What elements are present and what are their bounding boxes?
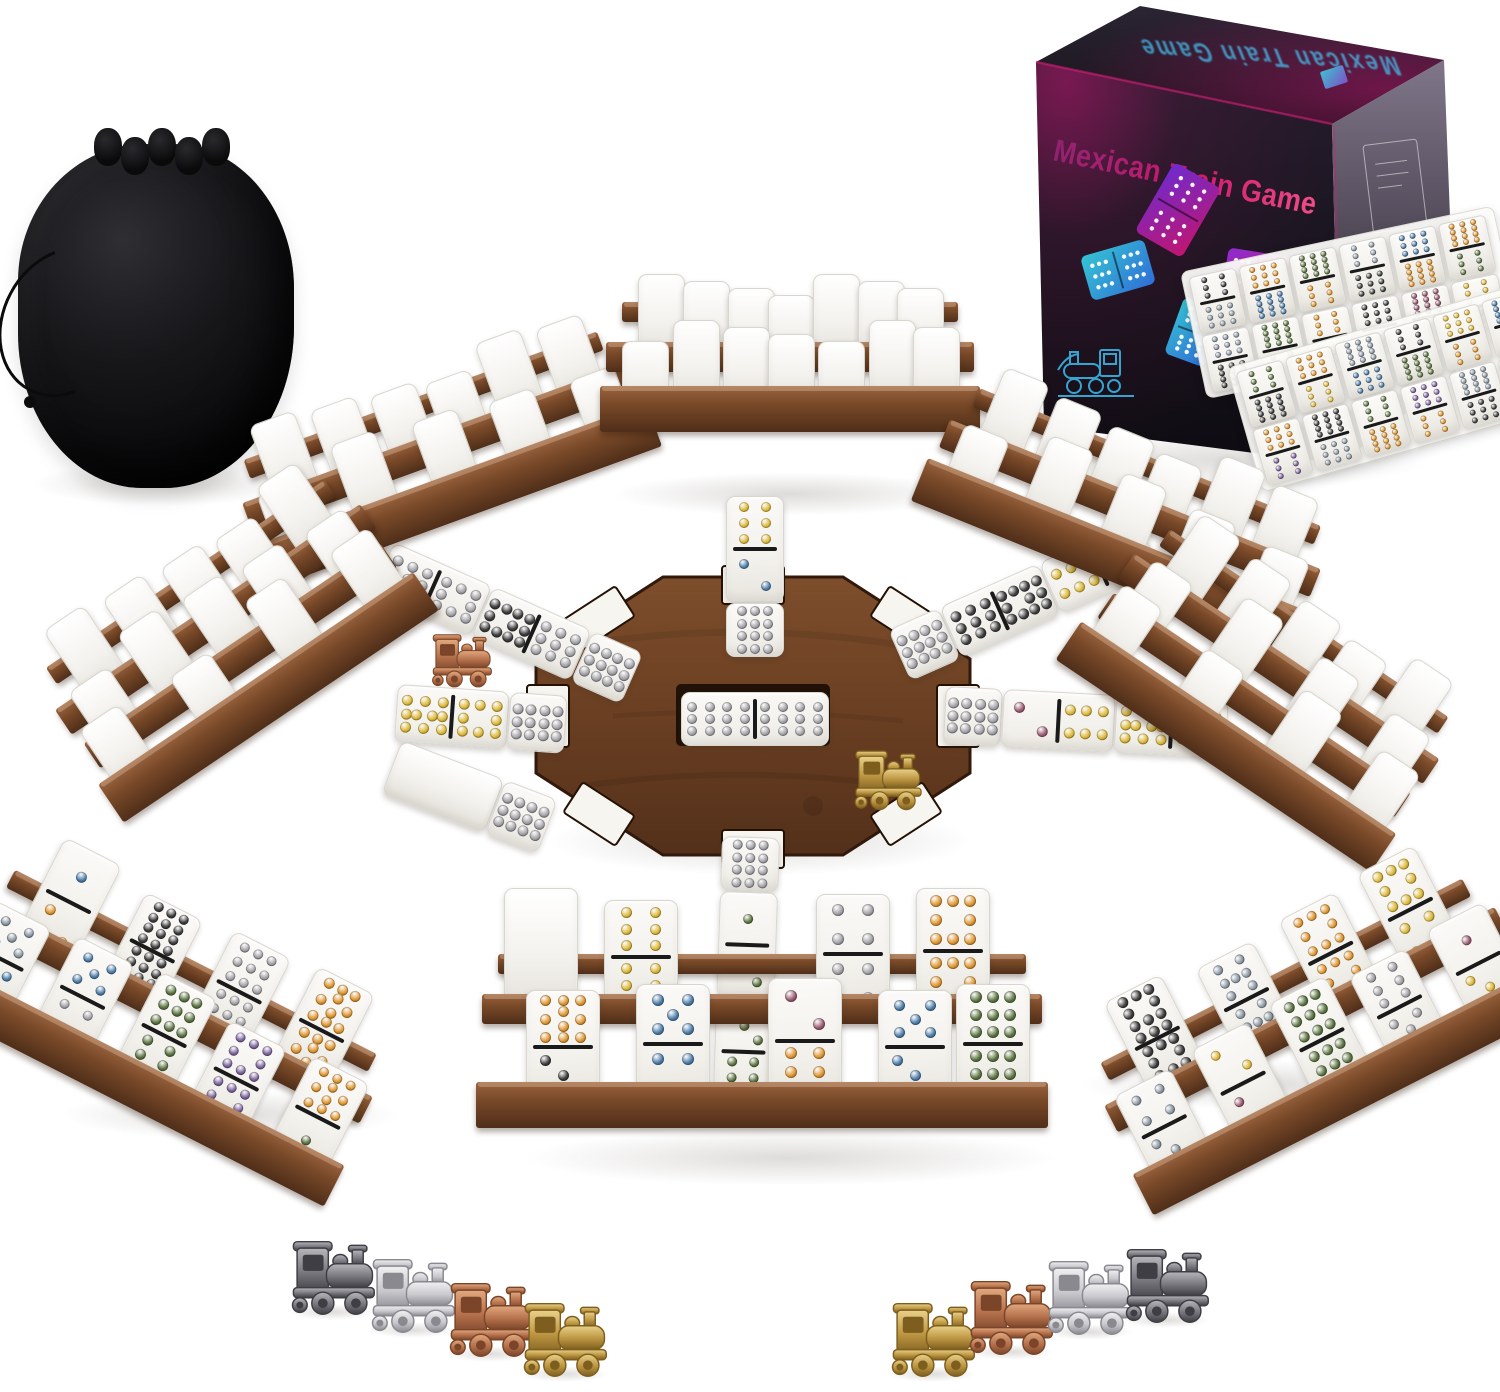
pip [1435,396,1442,403]
pip [1455,319,1462,326]
pip [1467,324,1474,331]
pip [1460,934,1473,947]
pip [190,996,205,1011]
pip [1364,971,1377,984]
pip [621,924,632,935]
pip [228,994,241,1007]
pip [1384,443,1391,450]
pip [1397,336,1404,343]
pip [813,726,823,736]
pip [682,994,694,1006]
pip [532,817,546,831]
pip [795,726,805,736]
pip [1482,413,1489,420]
pip [1396,856,1411,871]
pip [733,840,743,850]
pip [1211,964,1224,977]
pip [970,1026,982,1038]
pip [1265,366,1272,373]
pip [525,800,539,814]
pip [1412,394,1419,401]
pip [1305,385,1312,392]
pip [1250,378,1257,385]
pip [489,727,501,739]
pip [1370,249,1377,256]
pip [1273,277,1280,284]
pip [250,983,263,996]
pip [1294,467,1301,474]
pip [1472,346,1479,353]
pip [1280,411,1287,418]
pip [1382,403,1389,410]
pip [227,1044,240,1057]
pip [1399,343,1406,350]
pip [925,1027,936,1038]
pip [336,1094,349,1107]
pip [1417,338,1424,345]
domino-divider [775,1039,835,1043]
pip [795,702,805,712]
pip [1222,334,1229,341]
pip [1463,975,1476,988]
pip [162,1018,177,1033]
pip [1369,288,1376,295]
pip [1342,949,1355,962]
pip [575,1032,586,1043]
pip [1399,986,1412,999]
pip [1362,400,1369,407]
pip [1332,448,1339,455]
pip [261,1044,274,1057]
pip [1459,268,1466,275]
pip [1299,930,1312,943]
pip [1122,1007,1137,1022]
pip [1306,1049,1321,1064]
pip [1220,281,1227,288]
pip [156,997,171,1012]
pip [1458,261,1465,268]
pip [152,900,165,913]
pip [1246,979,1259,992]
pip [558,656,573,671]
pip [1265,436,1272,443]
pip [1213,344,1220,351]
pip [1228,310,1235,317]
pip [1272,457,1279,464]
pip [621,963,632,974]
pip [1469,409,1476,416]
pip [214,988,227,1001]
pip [1331,310,1338,317]
pip [1004,1009,1016,1021]
pip [558,1070,569,1081]
pip [1230,317,1237,324]
packed-domino [1238,257,1297,324]
pip [930,895,942,907]
pip [94,984,107,997]
pip [1465,316,1472,323]
train-token-art [286,1238,378,1317]
pip [964,914,976,926]
pip [0,914,13,927]
pip [894,1027,905,1038]
pip [1310,1023,1325,1038]
pip [340,1005,355,1020]
pip [1330,441,1337,448]
pip [1404,871,1419,886]
pip [1262,429,1269,436]
domino-divider [923,949,983,953]
pip [1364,408,1371,415]
pip [737,631,747,641]
pip [1128,989,1143,1004]
pip [1320,444,1327,451]
pip [1320,366,1327,373]
pip [750,619,760,629]
pip [1352,253,1359,260]
pip [862,933,874,945]
pip [1422,391,1429,398]
pip [1218,273,1225,280]
pip [667,1009,679,1021]
pip [1267,373,1274,380]
pip [1411,240,1418,247]
pip [238,1088,251,1101]
pip [746,840,756,850]
pip [862,904,874,916]
pip [1299,372,1306,379]
bag-cinch-fold [94,128,122,166]
pip [1358,290,1365,297]
pip [1333,1035,1348,1050]
pip [1410,1006,1423,1019]
pip [148,1012,163,1027]
pip [930,933,942,945]
pip [1250,274,1257,281]
pip [288,1041,303,1056]
pip [1221,382,1228,389]
pip [1467,401,1474,408]
pip [1296,1029,1311,1044]
pip [1376,373,1383,380]
pip [947,895,959,907]
pip [1306,354,1313,361]
pip [1395,328,1402,335]
pip [1456,358,1463,365]
pip [1417,371,1424,378]
pip [763,631,773,641]
packed-domino [1438,214,1497,281]
pip [141,1032,156,1047]
pip [12,947,25,960]
pip [1307,393,1314,400]
pip [650,924,661,935]
bag-cinch-fold [202,128,230,166]
pip [1382,299,1389,306]
pip [1453,312,1460,319]
pip [1376,270,1383,277]
rack-bottom-center [486,888,1062,1208]
pip [1270,262,1277,269]
pip [1378,278,1385,285]
pip [1496,317,1500,324]
pip [1422,422,1429,429]
pip [862,963,874,975]
pip [1424,399,1431,406]
pip [930,914,942,926]
pip [348,989,363,1004]
pip [682,1053,694,1065]
pip [1259,313,1266,320]
pip [1386,960,1399,973]
pip [1217,312,1224,319]
pip [1323,380,1330,387]
pip [1326,289,1333,296]
pip [1249,267,1256,274]
pip [1446,330,1453,337]
pip [540,1055,551,1066]
pip [1263,280,1270,287]
pip [221,1057,234,1070]
pip [22,926,35,939]
pip [1427,368,1434,375]
train-token-art [518,1300,610,1379]
pip [1290,452,1297,459]
pip [1275,465,1282,472]
pip [813,714,823,724]
pip [313,992,328,1007]
pip [247,1037,260,1050]
pip [987,1026,999,1038]
pip [1309,400,1316,407]
pip [737,644,747,654]
pip [265,955,278,968]
pip [785,990,797,1002]
pip [1147,994,1162,1009]
pip [1241,1058,1254,1071]
pip [1400,242,1407,249]
pip [1292,916,1305,929]
pip [310,1081,323,1094]
pip [225,1081,238,1094]
pip [1444,322,1451,329]
pip [732,852,742,862]
pip [1412,323,1419,330]
pip [785,1066,797,1078]
pip [987,1068,999,1080]
pip [1269,310,1276,317]
pip [169,1004,184,1019]
pip [234,1064,247,1077]
pip [1324,459,1331,466]
hub-train-token-gold [850,748,924,812]
pip [1408,281,1415,288]
pip [1302,1008,1317,1023]
pip [1419,279,1426,286]
pip [1439,417,1446,424]
pip [1240,965,1253,978]
pip [1270,381,1277,388]
pip [1129,1094,1142,1107]
pip [1325,388,1332,395]
pip [1383,863,1398,878]
pip [0,970,13,983]
pip [1398,235,1405,242]
pip [1492,410,1499,417]
domino-divider [963,1042,1023,1046]
pip [1361,304,1368,311]
pip [1255,996,1268,1009]
pip [81,1009,94,1022]
pip [1368,241,1375,248]
pip [1252,282,1259,289]
pip [947,957,959,969]
pip [813,1047,825,1059]
pip [1384,410,1391,417]
pip [910,1070,921,1081]
pip [1490,403,1497,410]
product-photo-stage: Mexican Train GameMexican Train Game [0,0,1500,1392]
pip [1281,1000,1296,1015]
pip [1319,937,1332,950]
pip [238,941,251,954]
pip [1385,899,1400,914]
domino-divider [533,1045,593,1049]
pip [1471,416,1478,423]
pip [540,995,551,1006]
pip [1377,884,1392,899]
pip [1420,384,1427,391]
pip [1480,279,1487,286]
pip [1308,986,1323,1001]
pip [1415,331,1422,338]
pip [528,829,542,843]
pip [508,807,522,821]
pip [1315,1001,1330,1016]
pip [1433,388,1440,395]
pip [970,1050,982,1062]
pip [750,644,760,654]
pip [1316,330,1323,337]
pip [987,991,999,1003]
pip [70,973,83,986]
domino-tile [726,603,784,657]
pip [986,725,998,737]
pip [813,1018,825,1030]
pip [1202,284,1209,291]
pip [1480,406,1487,413]
pip [1227,302,1234,309]
pip [964,957,976,969]
pip [1406,374,1413,381]
pip [1457,327,1464,334]
pip [1384,307,1391,314]
pip [785,1047,797,1059]
pip [1420,230,1427,237]
pip [1332,931,1345,944]
pip [1437,410,1444,417]
pip [1380,395,1387,402]
pip [254,1057,267,1070]
bottom-train-token-left-gold [518,1300,610,1379]
pip [987,1050,999,1062]
pip [504,819,518,833]
pip [1295,357,1302,364]
pip [737,606,747,616]
pip [1310,369,1317,376]
pip [1280,308,1287,315]
pip [1310,300,1317,307]
pip [652,994,664,1006]
train-token-art [850,748,924,812]
pip [1153,1082,1166,1095]
pip [621,980,632,991]
pip [231,955,244,968]
pip [1224,990,1237,1003]
pip [1442,315,1449,322]
pip [758,841,768,851]
pip [1414,402,1421,409]
pip [1225,349,1232,356]
pip [930,976,942,988]
pip [540,1014,551,1025]
pip [970,1009,982,1021]
pip [1412,248,1419,255]
pip [763,619,773,629]
pip [832,963,844,975]
pip [1371,256,1378,263]
pip [813,1066,825,1078]
rack-front-rail [476,1082,1048,1128]
pip [501,791,515,805]
pip [621,907,632,918]
pip [244,962,257,975]
pip [745,853,755,863]
pip [1004,1050,1016,1062]
pip [1350,245,1357,252]
pip [1334,326,1341,333]
pip [947,933,959,945]
pip [1394,440,1401,447]
pip [1323,1016,1338,1031]
pip [496,803,510,817]
pip [1305,910,1318,923]
bottom-train-token-left-gunmetal [286,1238,378,1317]
pip [1463,309,1470,316]
pip [1272,270,1279,277]
pip [1488,395,1495,402]
pip [1474,353,1481,360]
pip [237,976,250,989]
pip [1431,381,1438,388]
pip [1313,314,1320,321]
pip [1307,285,1314,292]
pip [472,726,484,738]
bag-cinch-fold [175,137,203,175]
pip [1378,381,1385,388]
pip [1286,430,1293,437]
domino-divider [823,952,883,956]
pip [344,1079,357,1092]
pip [650,963,661,974]
pip [650,940,661,951]
pip [1464,290,1471,297]
pip [1374,446,1381,453]
pip [1259,416,1266,423]
pip [1273,426,1280,433]
domino-divider [1220,1070,1266,1096]
pip [964,933,976,945]
